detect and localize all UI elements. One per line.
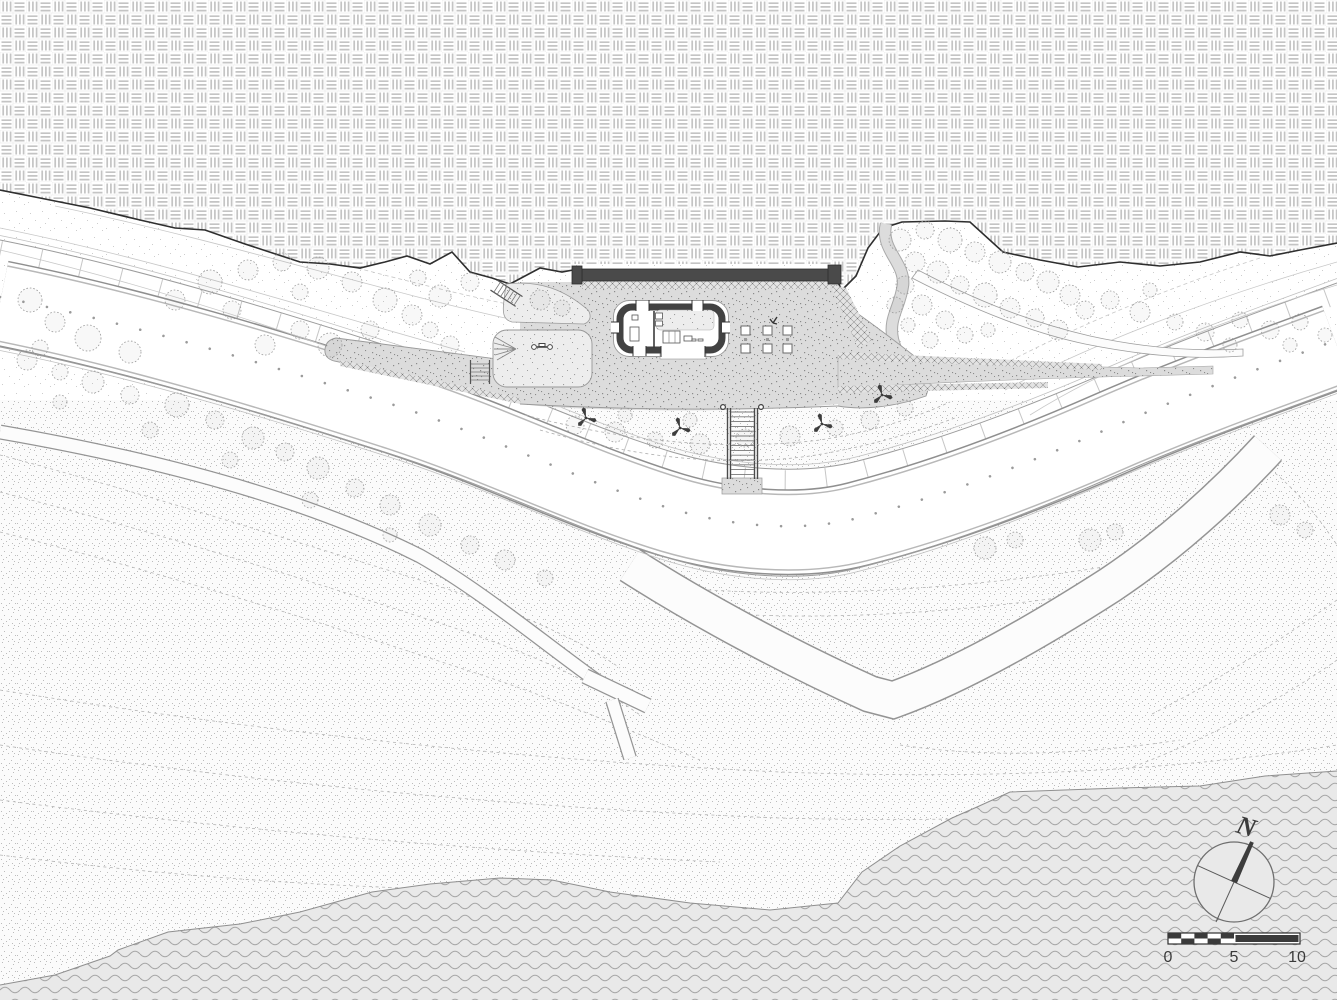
scale-label-0: 0 [1164,949,1173,966]
site-plan-drawing: N 0 5 10 [0,0,1337,1000]
scale-label-5: 5 [1230,949,1239,966]
stair-post [759,405,764,410]
lower-left-stair [471,360,490,384]
site-plan-page: N 0 5 10 [0,0,1337,1000]
interior-courtyard [656,310,714,330]
pavilion-building [611,300,730,359]
stair-post [721,405,726,410]
scale-label-10: 10 [1288,949,1306,966]
playground-lawn [493,330,592,387]
